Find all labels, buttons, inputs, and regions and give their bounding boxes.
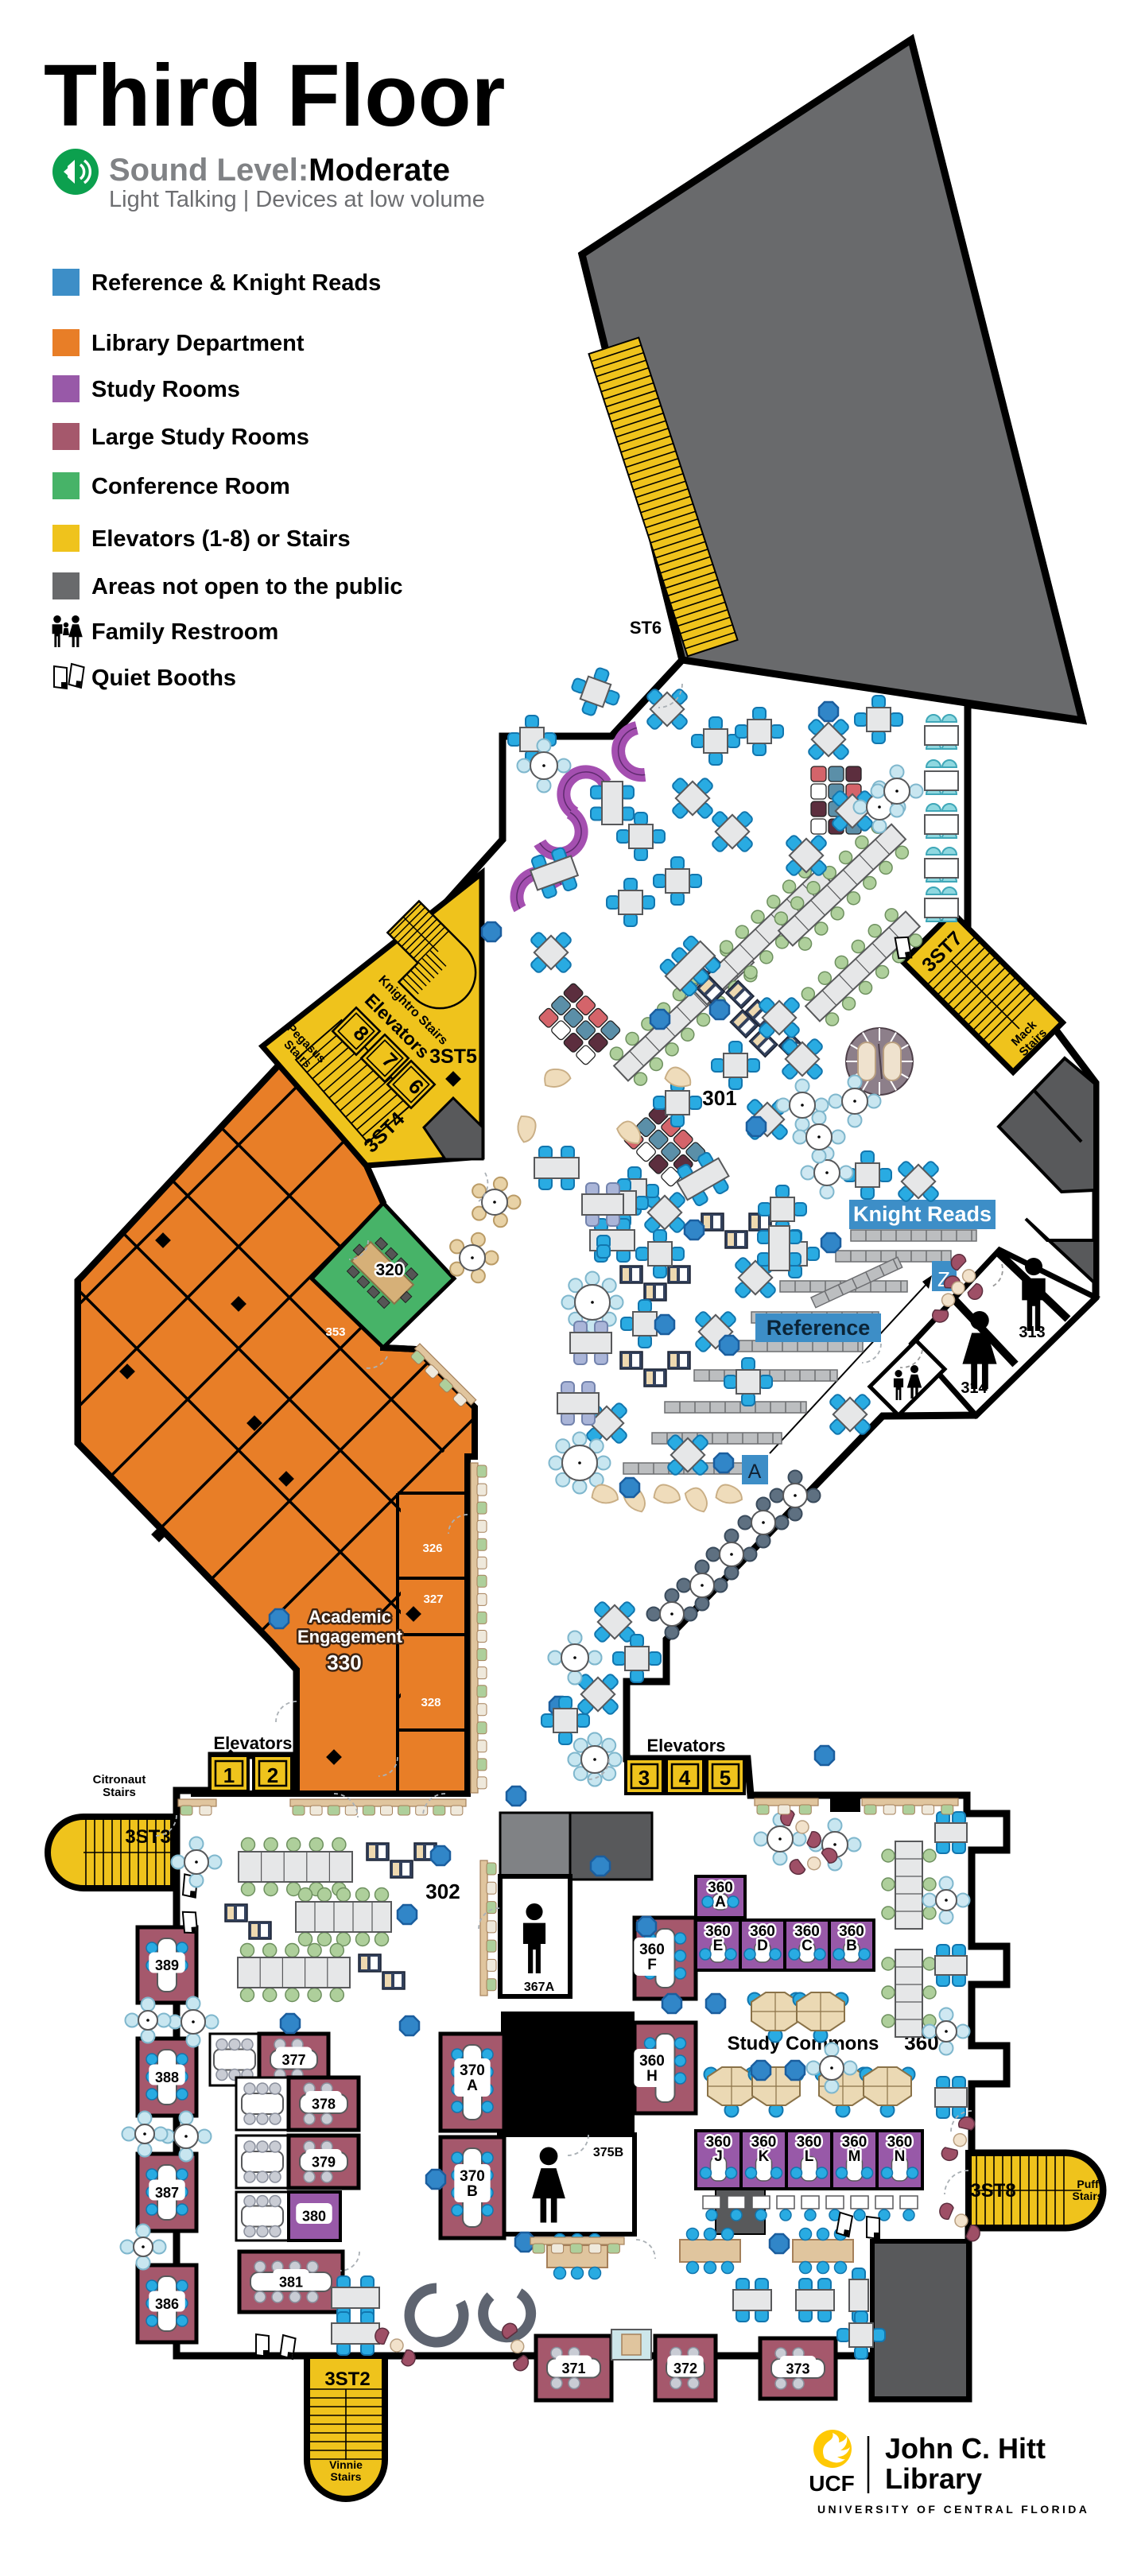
- svg-text:H: H: [646, 2068, 658, 2085]
- svg-text:353: 353: [325, 1325, 345, 1339]
- svg-text:Vinnie: Vinnie: [329, 2458, 363, 2471]
- svg-text:3ST3: 3ST3: [125, 1826, 170, 1848]
- svg-text:Citronaut: Citronaut: [93, 1773, 146, 1787]
- svg-text:386: 386: [155, 2296, 179, 2312]
- svg-text:301: 301: [702, 1086, 736, 1110]
- svg-text:Stairs: Stairs: [103, 1786, 136, 1799]
- svg-text:J: J: [714, 2148, 723, 2165]
- svg-text:320: 320: [375, 1261, 403, 1279]
- svg-text:378: 378: [312, 2096, 336, 2112]
- svg-text:3: 3: [638, 1766, 650, 1790]
- svg-text:326: 326: [422, 1542, 442, 1555]
- svg-text:360: 360: [639, 1942, 665, 1958]
- svg-text:3ST5: 3ST5: [429, 1046, 477, 1068]
- svg-text:A: A: [748, 1461, 762, 1483]
- svg-text:N: N: [895, 2148, 906, 2165]
- svg-text:Stairs: Stairs: [1073, 2190, 1104, 2202]
- svg-text:373: 373: [786, 2361, 809, 2376]
- svg-text:UCF: UCF: [809, 2471, 855, 2496]
- svg-text:2: 2: [267, 1763, 278, 1787]
- svg-text:380: 380: [302, 2208, 326, 2224]
- svg-text:UNIVERSITY OF CENTRAL FLORIDA: UNIVERSITY OF CENTRAL FLORIDA: [817, 2503, 1089, 2516]
- svg-text:372: 372: [673, 2361, 697, 2376]
- svg-text:360: 360: [639, 2053, 665, 2070]
- svg-text:B: B: [846, 1938, 857, 1954]
- svg-text:3ST2: 3ST2: [324, 2368, 370, 2390]
- svg-text:Engagement: Engagement: [297, 1627, 403, 1647]
- svg-text:C: C: [801, 1938, 813, 1954]
- svg-text:K: K: [759, 2148, 770, 2165]
- svg-text:Reference: Reference: [767, 1316, 871, 1340]
- svg-text:302: 302: [425, 1880, 460, 1903]
- svg-text:3ST8: 3ST8: [970, 2180, 1015, 2202]
- svg-text:Puff: Puff: [1077, 2178, 1099, 2190]
- svg-text:A: A: [467, 2077, 478, 2094]
- svg-text:370: 370: [460, 2062, 485, 2079]
- svg-text:1: 1: [223, 1763, 235, 1787]
- svg-text:328: 328: [421, 1696, 441, 1709]
- svg-text:375B: 375B: [593, 2146, 623, 2159]
- svg-text:Family Restroom: Family Restroom: [91, 619, 278, 645]
- svg-text:5: 5: [720, 1766, 731, 1790]
- svg-text:370: 370: [460, 2168, 485, 2185]
- svg-text:E: E: [713, 1938, 724, 1954]
- svg-text:Quiet Booths: Quiet Booths: [91, 665, 236, 691]
- svg-text:John C. Hitt: John C. Hitt: [885, 2432, 1046, 2465]
- svg-text:314: 314: [961, 1379, 988, 1397]
- svg-text:Large Study Rooms: Large Study Rooms: [91, 425, 309, 450]
- svg-text:Stairs: Stairs: [331, 2470, 362, 2483]
- svg-text:387: 387: [155, 2185, 179, 2201]
- svg-text:ST6: ST6: [630, 618, 662, 638]
- svg-text:Library: Library: [885, 2462, 982, 2495]
- svg-text:Study Commons: Study Commons: [728, 2033, 879, 2054]
- svg-text:D: D: [757, 1938, 768, 1954]
- svg-text:371: 371: [561, 2361, 585, 2376]
- svg-text:Elevators: Elevators: [646, 1736, 725, 1755]
- svg-text:Light Talking | Devices at low: Light Talking | Devices at low volume: [109, 187, 485, 212]
- svg-text:327: 327: [423, 1593, 443, 1606]
- svg-text:4: 4: [679, 1766, 691, 1790]
- svg-text:Areas not open to the public: Areas not open to the public: [91, 574, 403, 599]
- svg-text:Library Department: Library Department: [91, 331, 305, 356]
- svg-text:Academic: Academic: [309, 1607, 391, 1627]
- svg-text:367A: 367A: [524, 1980, 555, 1994]
- svg-text:A: A: [715, 1894, 726, 1911]
- svg-text:Elevators: Elevators: [213, 1733, 292, 1753]
- svg-text:Conference Room: Conference Room: [91, 474, 290, 499]
- svg-text:Third Floor: Third Floor: [44, 47, 505, 145]
- svg-text:Study Rooms: Study Rooms: [91, 377, 240, 402]
- svg-text:313: 313: [1019, 1324, 1045, 1341]
- svg-text:F: F: [647, 1957, 657, 1973]
- svg-text:377: 377: [281, 2052, 305, 2068]
- svg-text:Elevators (1-8) or Stairs: Elevators (1-8) or Stairs: [91, 526, 351, 552]
- svg-text:379: 379: [312, 2154, 336, 2170]
- svg-text:388: 388: [155, 2070, 179, 2085]
- svg-text:Sound Level:Moderate: Sound Level:Moderate: [109, 153, 450, 188]
- svg-text:Reference & Knight Reads: Reference & Knight Reads: [91, 270, 381, 296]
- svg-text:B: B: [467, 2183, 478, 2200]
- svg-text:M: M: [848, 2148, 861, 2165]
- svg-text:381: 381: [279, 2274, 303, 2290]
- svg-text:330: 330: [327, 1651, 361, 1674]
- svg-text:Knight Reads: Knight Reads: [853, 1202, 992, 1226]
- svg-text:L: L: [805, 2148, 814, 2165]
- svg-text:389: 389: [155, 1957, 179, 1973]
